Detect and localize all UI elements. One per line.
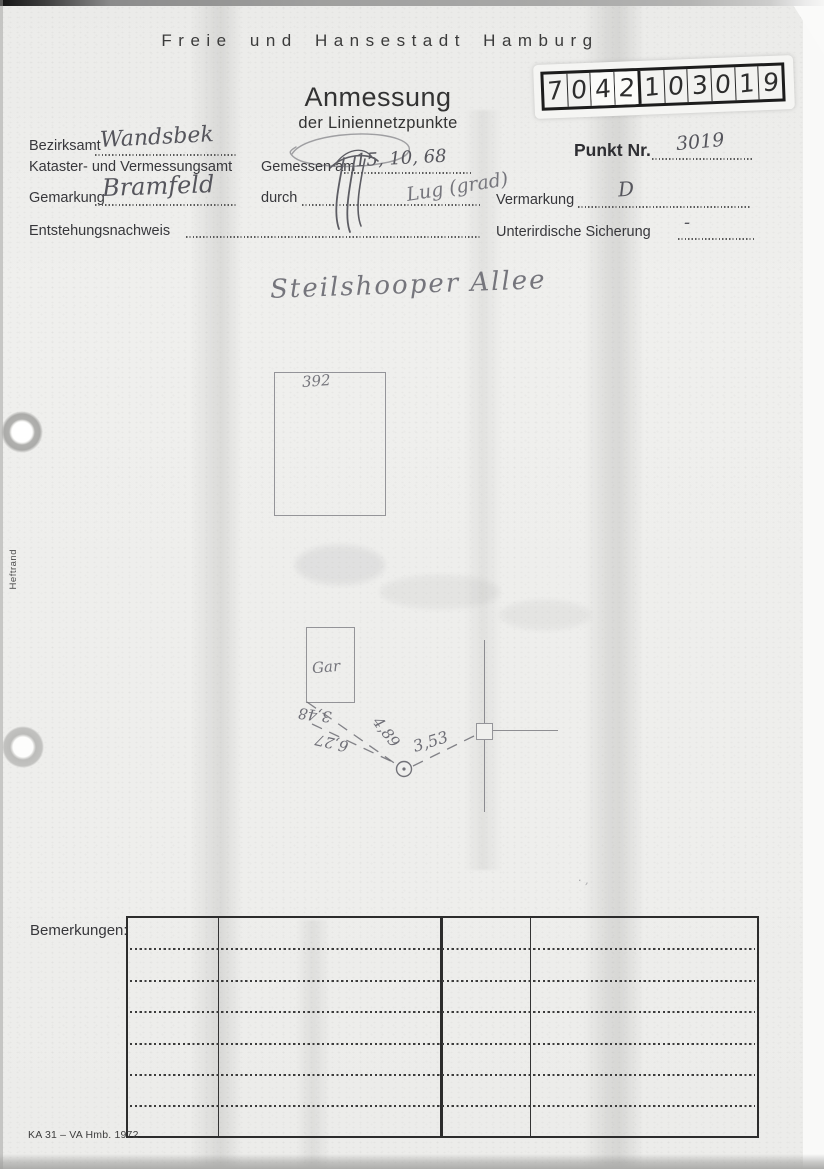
margin-label-heftrand: Heftrand — [8, 549, 19, 589]
stamp-digit-box: 7 0 4 2 1 0 3 0 1 9 — [540, 62, 785, 110]
value-unterirdische-sicherung: - — [684, 212, 690, 233]
remarks-table — [126, 916, 759, 1138]
digit: 3 — [692, 70, 708, 101]
stamp-digit: 7 — [543, 74, 568, 108]
point-number-stamp: 7 0 4 2 1 0 3 0 1 9 — [533, 55, 795, 119]
pencil-smudge — [295, 545, 385, 585]
table-row-line — [130, 1074, 755, 1076]
line-unterirdische-sicherung — [678, 238, 754, 240]
digit: 0 — [570, 75, 588, 104]
stamp-digit: 1 — [735, 66, 760, 100]
label-punkt-nr: Punkt Nr. — [574, 140, 651, 161]
digit: 0 — [667, 71, 685, 100]
pencil-smudge — [500, 600, 590, 630]
table-row-line — [130, 980, 755, 982]
table-divider — [530, 918, 531, 1136]
stamp-digit: 0 — [664, 69, 689, 103]
table-divider-heavy — [440, 918, 443, 1136]
label-bemerkungen: Bemerkungen: — [30, 922, 128, 939]
line-vermarkung — [578, 206, 750, 208]
measurement-3-48: 3,48 — [297, 704, 332, 726]
form-code: KA 31 – VA Hmb. 1972 — [28, 1129, 139, 1141]
parcel-392-outline — [274, 372, 386, 516]
measurement-6-27: 6,27 — [313, 730, 350, 755]
stamp-digit: 0 — [567, 73, 592, 107]
digit: 1 — [644, 72, 660, 103]
digit: 1 — [739, 68, 755, 99]
measurement-4-89: 4,89 — [368, 713, 404, 752]
label-vermarkung: Vermarkung — [496, 192, 574, 208]
digit: 9 — [761, 68, 779, 97]
line-punkt-nr — [652, 158, 752, 160]
line-bezirksamt — [95, 154, 237, 156]
punch-hole-top — [1, 411, 43, 453]
header-city: Freie und Hansestadt Hamburg — [0, 31, 760, 51]
label-bezirksamt: Bezirksamt — [29, 138, 101, 154]
stamp-digit: 1 — [640, 70, 665, 104]
table-row-line — [130, 948, 755, 950]
value-vermarkung: D — [617, 176, 635, 201]
digit: 2 — [617, 73, 635, 102]
line-gemarkung — [95, 204, 237, 206]
signature-scribble — [272, 126, 492, 238]
scanned-form-page: Heftrand Freie und Hansestadt Hamburg An… — [0, 0, 824, 1169]
digit: 0 — [714, 70, 732, 99]
table-row-line — [130, 1011, 755, 1013]
punch-hole-bottom — [2, 726, 44, 768]
stamp-digit: 4 — [591, 72, 616, 106]
scanner-background-right — [803, 0, 824, 1169]
value-punkt-nr: 3019 — [675, 129, 725, 155]
digit: 7 — [547, 75, 563, 106]
stamp-digit: 3 — [688, 68, 713, 102]
parcel-number: 392 — [301, 371, 331, 391]
line-entstehungsnachweis — [186, 236, 480, 238]
form-title: Anmessung — [178, 82, 578, 113]
measurement-3-53: 3,53 — [411, 727, 451, 756]
scan-edge-bottom — [0, 1154, 824, 1169]
value-gemarkung: Bramfeld — [102, 170, 215, 202]
table-divider — [218, 918, 219, 1136]
table-row-line — [130, 1043, 755, 1045]
measurement-sketch: 3,48 4,89 6,27 3,53 — [250, 600, 590, 830]
scan-edge-top — [0, 0, 824, 6]
label-unterirdische-sicherung: Unterirdische Sicherung — [496, 224, 651, 240]
stamp-digit: 2 — [614, 71, 641, 105]
stamp-digit: 9 — [759, 65, 783, 99]
pencil-smudge — [380, 575, 500, 609]
digit: 4 — [595, 73, 611, 104]
scan-edge-left — [0, 0, 3, 1169]
table-row-line — [130, 1105, 755, 1107]
stray-pencil-mark: · , — [578, 874, 589, 887]
stamp-digit: 0 — [711, 67, 736, 101]
label-gemarkung: Gemarkung — [29, 190, 105, 206]
label-entstehungsnachweis: Entstehungsnachweis — [29, 223, 170, 239]
